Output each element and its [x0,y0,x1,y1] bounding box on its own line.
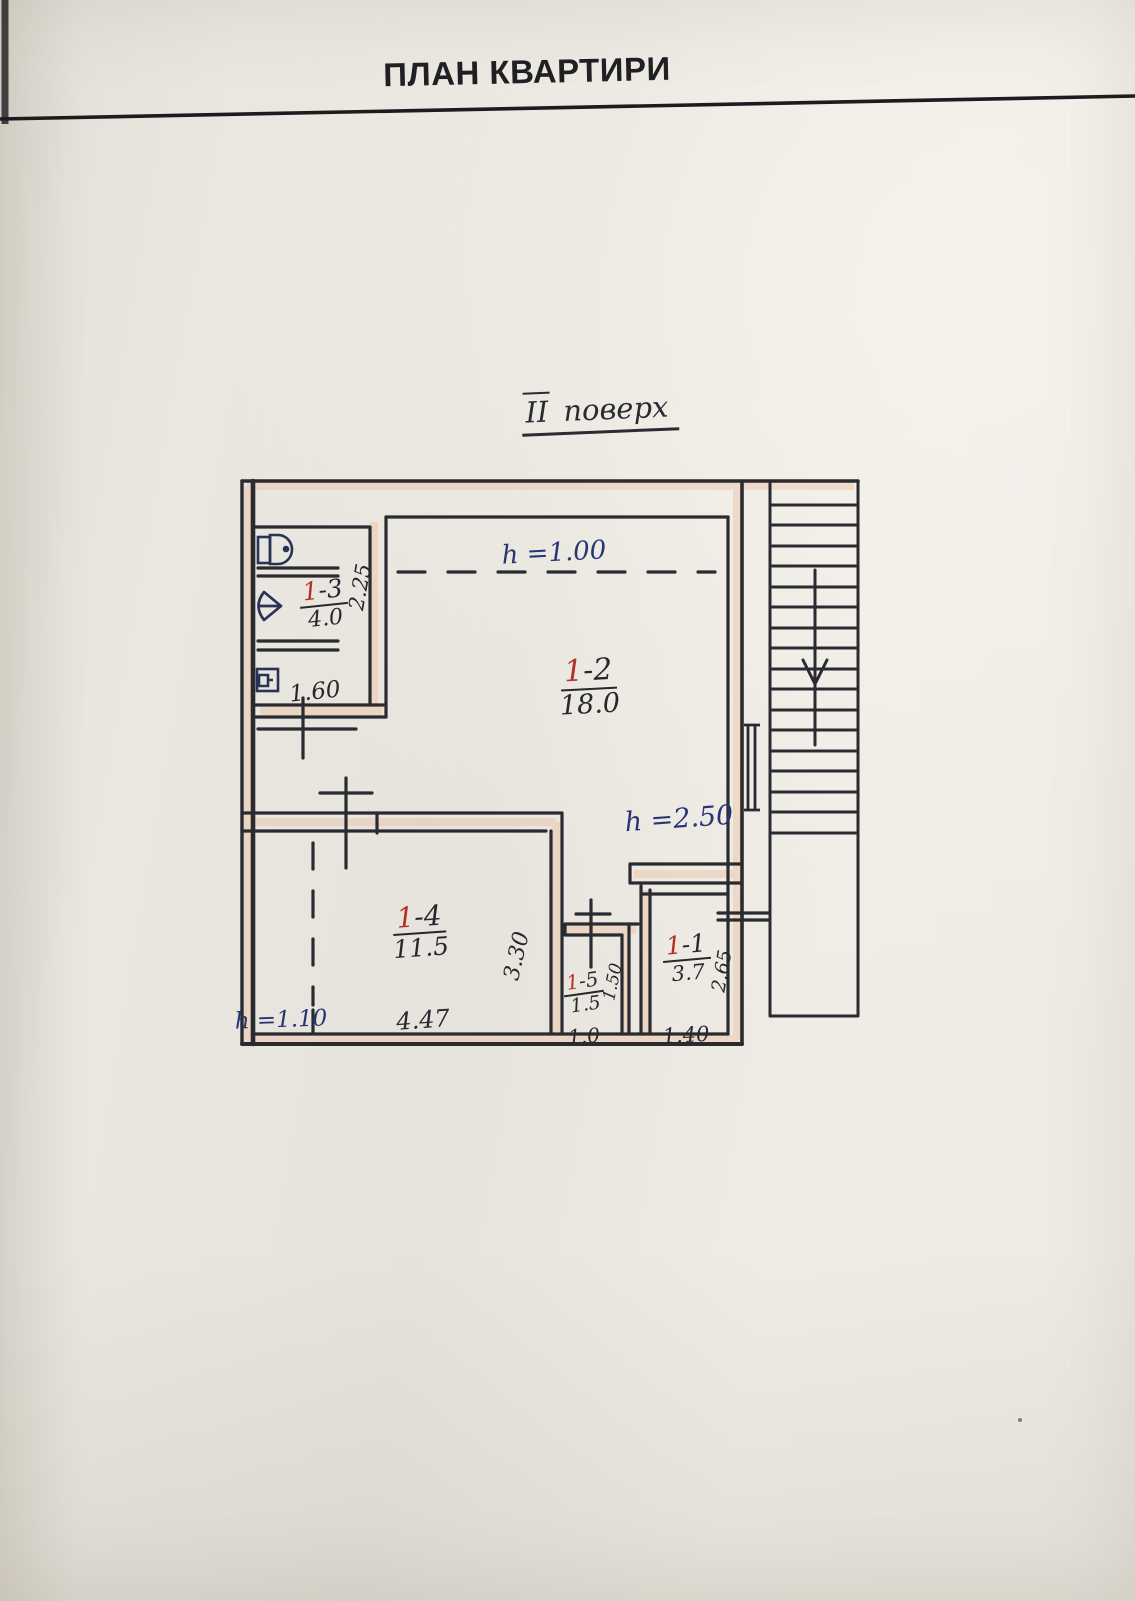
ink-speck [1018,1418,1022,1422]
floor-label: ІІповерх [521,389,680,437]
bathroom-walls [256,517,386,758]
floor-plan-drawing [0,0,1135,1601]
room-1-2-label: 1-2 18.0 [557,654,620,721]
room-1-4-label: 1-4 11.5 [390,900,450,963]
dimension-bath-width: 1.60 [288,676,342,707]
room-1-1-area: 3.7 [663,959,713,986]
floor-word: поверх [563,390,669,428]
toilet-icon [258,535,292,564]
height-label-h1-00: h =1.00 [501,535,607,570]
dimension-room-1-5-width: 1.0 [567,1023,600,1049]
window-symbol-icon [744,725,760,810]
dimension-room-1-1-width: 1.40 [662,1022,710,1048]
scanned-floor-plan-page: ПЛАН КВАРТИРИ [0,0,1135,1601]
stairs-down-arrow-icon [803,570,827,745]
header-rule [0,0,1135,124]
room-1-3-area: 4.0 [300,604,351,633]
room-1-2-area: 18.0 [559,688,621,720]
room-1-4-number: 1-4 [391,900,446,936]
room-1-3-label: 1-3 4.0 [297,575,351,633]
room-1-4-area: 11.5 [392,933,449,964]
room-1-1-number: 1-1 [661,930,712,963]
room-1-1-label: 1-1 3.7 [661,930,714,986]
room-1-2-number: 1-2 [559,654,617,691]
water-heater-icon [257,669,278,691]
dimension-room-1-4-width: 4.47 [395,1004,450,1036]
floor-numeral: ІІ [523,392,551,430]
sink-icon [259,592,282,620]
height-label-h1-10: h =1.10 [234,1005,327,1034]
staircase [770,481,858,1016]
